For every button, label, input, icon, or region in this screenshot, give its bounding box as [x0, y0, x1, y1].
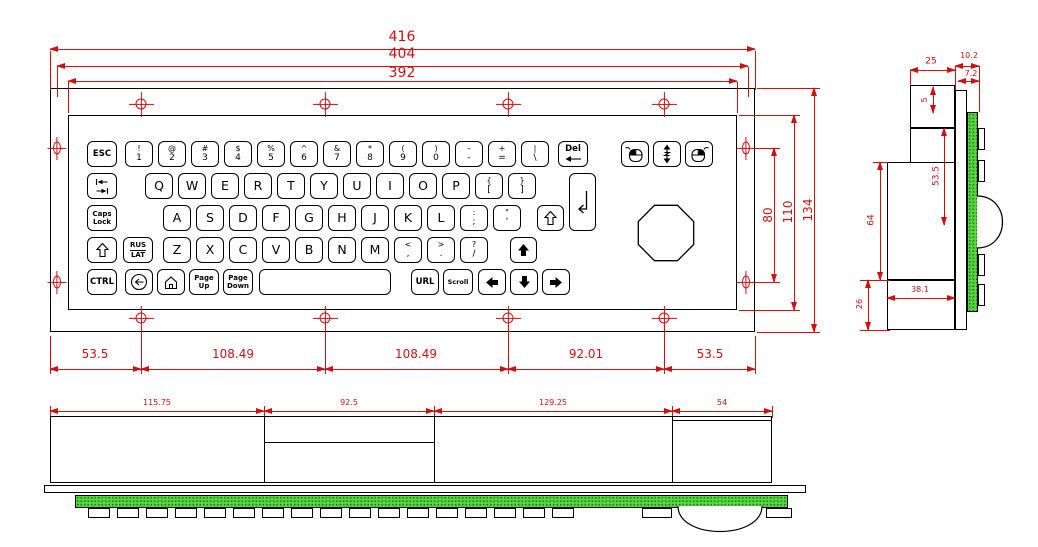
bottom-key-bump	[262, 508, 284, 518]
bottom-key-bump	[642, 508, 672, 518]
bottom-key-bumps	[0, 0, 1038, 547]
bottom-key-bump	[204, 508, 226, 518]
bottom-key-bump	[407, 508, 429, 518]
bottom-key-bump	[146, 508, 168, 518]
bottom-key-bump	[320, 508, 342, 518]
bottom-key-bump	[88, 508, 110, 518]
bottom-key-bump	[378, 508, 400, 518]
bottom-key-bump	[552, 508, 574, 518]
bottom-key-bump	[465, 508, 487, 518]
bottom-key-bump	[233, 508, 255, 518]
keyboard-technical-drawing: ESC!1@2#3$4%5^6&7*8(9)0–-+=|\DelQWERTYUI…	[0, 0, 1038, 547]
bottom-key-bump	[117, 508, 139, 518]
bottom-view: 115.75 92.5 129.25 54	[0, 0, 1038, 547]
bottom-key-bump	[175, 508, 197, 518]
bottom-key-bump	[766, 508, 792, 518]
bottom-key-bump	[436, 508, 458, 518]
bottom-key-bump	[291, 508, 313, 518]
bottom-key-bump	[523, 508, 545, 518]
bottom-key-bump	[349, 508, 371, 518]
bottom-key-bump	[494, 508, 516, 518]
bottom-trackball-arc	[676, 504, 764, 536]
